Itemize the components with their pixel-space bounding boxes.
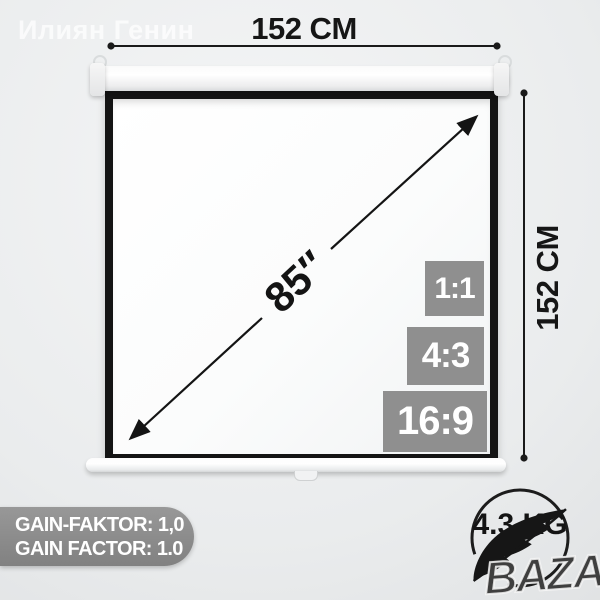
aspect-ratio-badge-16-9: 16:9 <box>383 391 487 452</box>
height-dimension-label: 152 CM <box>530 225 566 331</box>
aspect-ratio-label: 16:9 <box>397 399 473 444</box>
gain-factor-line-de: GAIN-FAKTOR: 1,0 <box>15 513 194 537</box>
screen-bottom-bar <box>86 458 506 472</box>
aspect-ratio-badge-4-3: 4:3 <box>407 327 484 385</box>
pull-handle <box>294 471 318 481</box>
gain-factor-pill: GAIN-FAKTOR: 1,0 GAIN FACTOR: 1.0 <box>0 507 194 566</box>
marketplace-watermark: BAZAR <box>482 541 600 600</box>
aspect-ratio-label: 4:3 <box>422 336 470 376</box>
gain-factor-line-en: GAIN FACTOR: 1.0 <box>15 537 194 561</box>
roller-endcap-left <box>90 63 105 96</box>
height-dimension-line <box>520 89 527 461</box>
screen-roller-housing <box>93 66 508 91</box>
width-dimension-label: 152 CM <box>111 11 497 47</box>
aspect-ratio-label: 1:1 <box>434 272 474 306</box>
roller-endcap-right <box>494 63 509 96</box>
product-image: Илиян Генин 152 CM 1:1 4:3 16:9 <box>0 0 600 600</box>
aspect-ratio-badge-1-1: 1:1 <box>425 261 484 316</box>
